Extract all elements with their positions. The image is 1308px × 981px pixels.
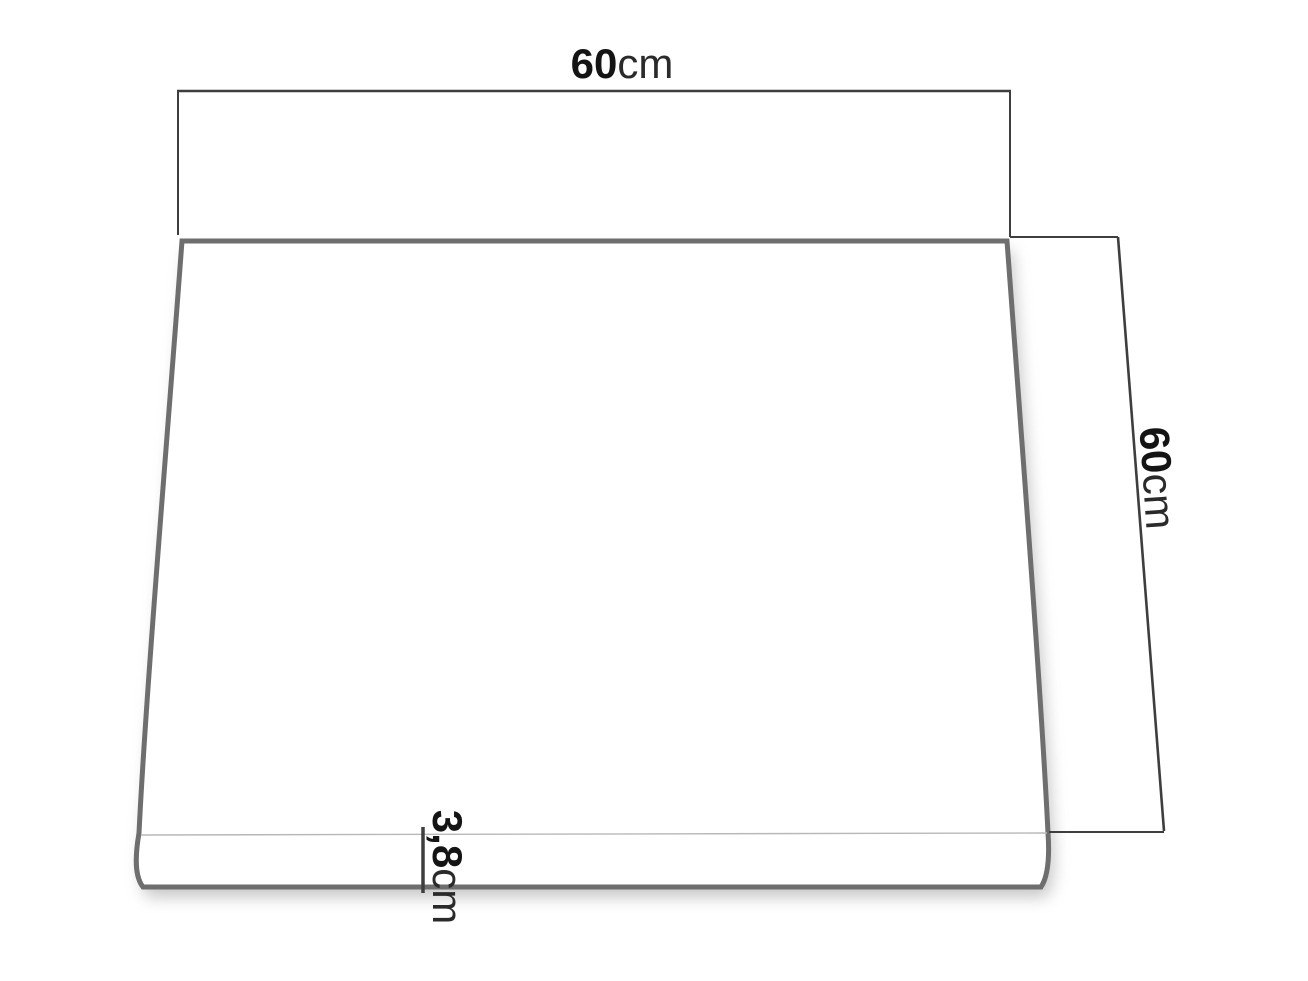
side-depth-value: 60 — [1130, 425, 1180, 475]
thickness-unit: cm — [424, 868, 471, 924]
thickness-label: 3,8cm — [426, 810, 468, 924]
side-depth-unit: cm — [1134, 472, 1185, 531]
side-depth-label: 60cm — [1132, 425, 1181, 530]
top-width-label: 60cm — [571, 43, 674, 85]
cushion-diagram-svg — [0, 0, 1308, 981]
top-width-unit: cm — [617, 40, 673, 87]
side-dimension-line — [1118, 237, 1164, 831]
top-width-value: 60 — [571, 40, 618, 87]
thickness-value: 3,8 — [424, 810, 471, 868]
diagram-canvas: 60cm 60cm 3,8cm — [0, 0, 1308, 981]
cushion-outline — [136, 241, 1048, 887]
